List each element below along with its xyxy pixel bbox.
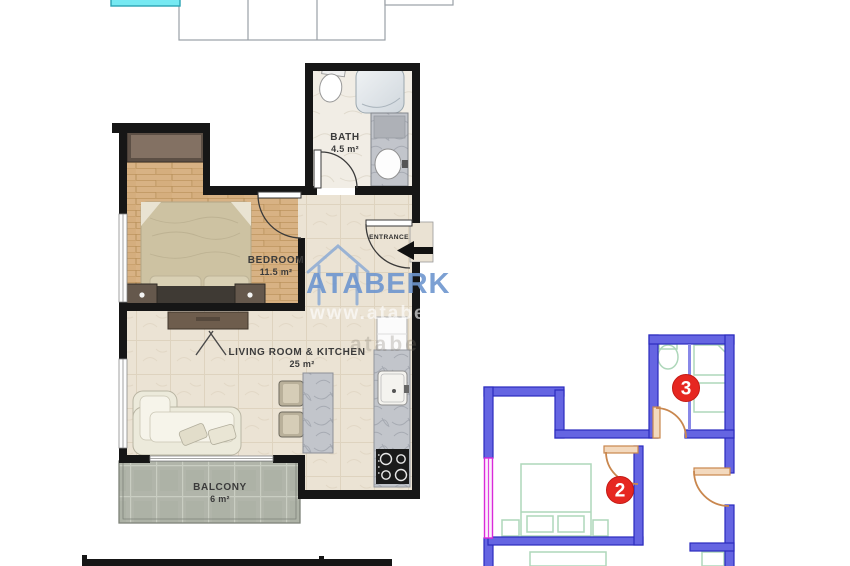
bed: [127, 202, 265, 307]
neighbor-plan-top-fragment: [111, 0, 453, 40]
dining-table: [303, 373, 333, 453]
top-fragment-room-right: [385, 0, 453, 5]
bottom-fragment-tick-left: [82, 555, 87, 566]
bath-faucet-icon: [402, 160, 408, 168]
faucet-icon: [404, 385, 409, 393]
top-fragment-rooms: [179, 0, 385, 40]
watermark-brand: ATABERK: [306, 268, 450, 300]
living-area: 25 m²: [289, 359, 314, 369]
bath-area: 4.5 m²: [331, 144, 359, 154]
kitchen-sink: [378, 371, 407, 405]
watermark-url-faint: atabe: [350, 333, 420, 356]
mini-nightstand-left: [502, 520, 519, 536]
pool-icon: [111, 0, 180, 6]
badge-3-number: 3: [681, 379, 692, 400]
balcony-label: BALCONY: [193, 482, 247, 493]
neighbor-plan-bottom-fragment: [82, 555, 392, 566]
mini-door-bath: [653, 407, 686, 438]
mini-nightstand-right: [593, 520, 608, 536]
mini-window: [485, 458, 493, 538]
watermark-url: www.atabe: [309, 303, 427, 324]
mini-dresser: [530, 552, 606, 566]
mini-bed: [521, 464, 591, 536]
wardrobe: [127, 131, 205, 162]
floorplan-image: ENTRANCE BATH 4.5 m² BEDROOM 11.5 m² LIV…: [0, 0, 850, 566]
entrance-label: ENTRANCE: [369, 234, 409, 241]
mini-door-right: [694, 468, 730, 506]
bottom-fragment-tick-mid: [319, 556, 324, 566]
bath-label: BATH: [330, 132, 359, 143]
mini-shower: [694, 345, 729, 375]
bath-sink: [375, 149, 401, 179]
balcony-area: 6 m²: [210, 494, 230, 504]
mini-cabinet: [702, 552, 724, 566]
bottom-fragment-wall: [82, 559, 392, 566]
floorplan-svg: ENTRANCE BATH 4.5 m² BEDROOM 11.5 m² LIV…: [0, 0, 850, 566]
living-label: LIVING ROOM & KITCHEN: [228, 347, 365, 358]
mini-floor-plan: 3 2: [484, 335, 734, 566]
shower: [356, 67, 404, 113]
bedroom-area: 11.5 m²: [260, 267, 293, 277]
bedroom-label: BEDROOM: [248, 255, 304, 266]
badge-2-number: 2: [615, 481, 626, 502]
